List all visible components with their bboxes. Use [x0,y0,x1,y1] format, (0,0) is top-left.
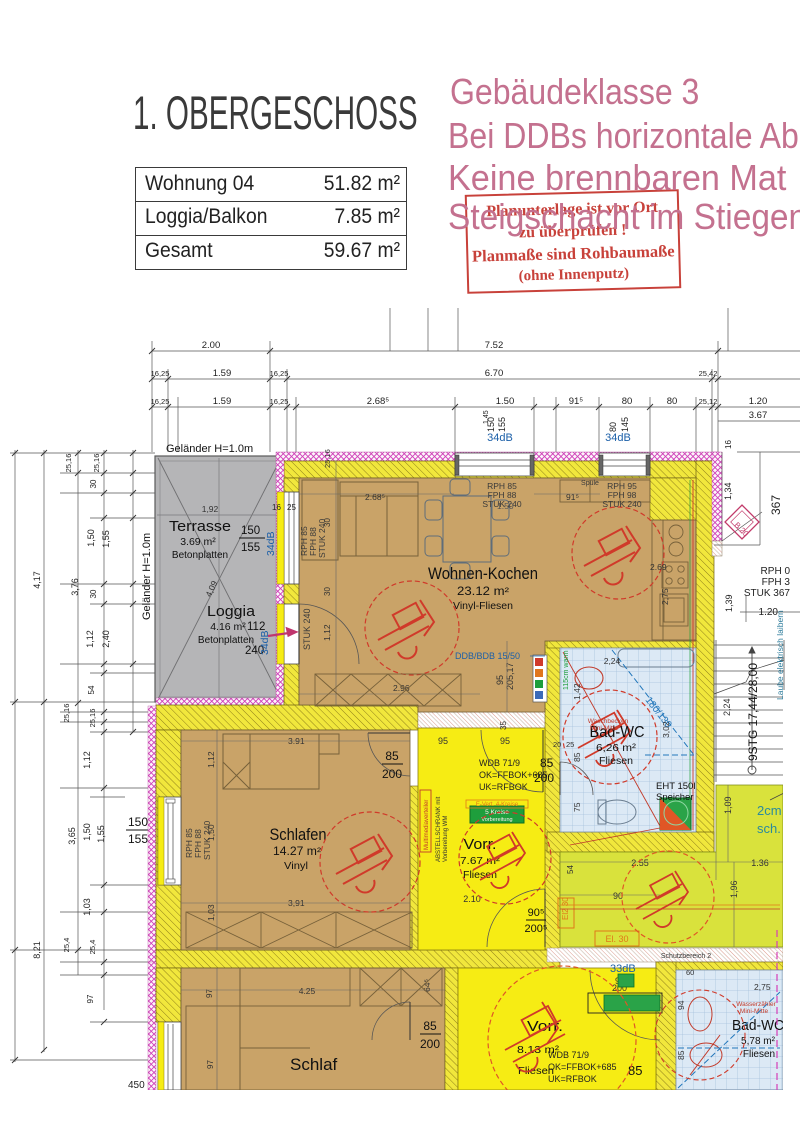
svg-text:14.27 m²: 14.27 m² [273,846,321,858]
svg-text:150: 150 [241,525,260,537]
svg-text:Fliesen: Fliesen [599,755,633,767]
svg-text:3,65: 3,65 [67,827,77,845]
svg-text:155: 155 [497,417,507,432]
svg-text:1,03: 1,03 [82,898,92,916]
svg-text:STUK 240: STUK 240 [602,499,641,509]
svg-text:23.12 m²: 23.12 m² [457,586,509,598]
svg-text:85: 85 [423,1019,437,1033]
svg-text:STUK 240: STUK 240 [302,608,312,650]
svg-text:EHT 150l: EHT 150l [656,781,695,792]
svg-text:54: 54 [87,685,96,694]
svg-text:Vinyl: Vinyl [284,860,308,872]
svg-text:2cm: 2cm [757,803,782,818]
svg-text:Betonplatten: Betonplatten [172,550,228,561]
svg-text:30: 30 [89,479,98,488]
svg-text:Mini-Mitte: Mini-Mitte [740,1008,769,1015]
svg-text:367: 367 [769,495,783,515]
svg-text:85: 85 [676,1050,686,1060]
svg-text:30: 30 [323,587,332,596]
svg-text:25: 25 [287,503,296,512]
svg-text:1,50: 1,50 [206,824,216,841]
svg-text:2.68⁵: 2.68⁵ [367,396,389,407]
svg-text:4.25: 4.25 [299,986,316,996]
svg-text:2,75: 2,75 [754,982,771,992]
svg-text:2,75: 2,75 [660,588,670,605]
svg-text:1.20: 1.20 [749,396,768,407]
svg-text:Wasserzähler: Wasserzähler [736,1001,776,1008]
svg-text:1,12: 1,12 [322,624,332,641]
svg-text:Fliesen: Fliesen [743,1049,775,1060]
svg-text:25,16: 25,16 [64,454,73,473]
svg-text:FPH 3: FPH 3 [762,577,791,588]
svg-text:4.16 m²: 4.16 m² [210,621,246,633]
svg-text:Laube elektrisch laibern: Laube elektrisch laibern [775,610,785,700]
svg-text:3,76: 3,76 [70,578,80,596]
svg-text:UK=RFBOK: UK=RFBOK [548,1074,597,1084]
svg-text:4,17: 4,17 [32,571,42,589]
svg-text:34dB: 34dB [265,531,277,556]
svg-text:3,02: 3,02 [661,721,671,738]
svg-text:1.36: 1.36 [751,858,769,868]
svg-text:34dB: 34dB [487,432,513,444]
svg-text:Geländer H=1.0m: Geländer H=1.0m [166,443,253,455]
svg-text:25,4: 25,4 [62,938,71,953]
svg-text:16: 16 [272,503,281,512]
svg-text:1,12: 1,12 [82,751,92,769]
svg-text:91⁵: 91⁵ [569,396,584,407]
svg-text:2,24: 2,24 [722,698,732,716]
svg-text:Spüle: Spüle [581,480,599,487]
svg-text:1,55: 1,55 [96,825,106,843]
svg-text:WDB 71/9: WDB 71/9 [548,1050,589,1060]
svg-text:95: 95 [495,675,505,685]
svg-text:6,26 m²: 6,26 m² [596,742,637,754]
svg-text:1,55: 1,55 [101,530,111,548]
svg-text:RPH 0: RPH 0 [761,566,791,577]
svg-text:94: 94 [676,1000,686,1010]
svg-text:Bad-WC: Bad-WC [732,1017,784,1034]
svg-text:80: 80 [608,422,618,432]
svg-text:Terrasse: Terrasse [169,518,231,535]
svg-text:16: 16 [724,440,733,449]
svg-text:1,50: 1,50 [82,823,92,841]
svg-text:200: 200 [382,767,402,781]
svg-text:2.68⁵: 2.68⁵ [365,492,385,502]
svg-text:35: 35 [499,721,508,730]
svg-text:6.70: 6.70 [485,368,504,379]
svg-text:El2 30: El2 30 [561,897,570,920]
svg-text:200: 200 [420,1037,440,1051]
svg-text:Speicher: Speicher [656,792,694,803]
svg-text:DDB/BDB 15/50: DDB/BDB 15/50 [455,651,520,661]
svg-text:1,12: 1,12 [85,630,95,648]
svg-text:1,50: 1,50 [86,529,96,547]
svg-text:8,21: 8,21 [32,941,42,959]
svg-text:30: 30 [89,589,98,598]
svg-text:UK=RFBOK: UK=RFBOK [479,782,528,792]
svg-text:205,17: 205,17 [505,662,515,690]
svg-text:Vorbereitung WM: Vorbereitung WM [443,816,449,862]
svg-text:Mini-Mitte: Mini-Mitte [590,725,619,732]
svg-text:16,25: 16,25 [151,369,170,378]
svg-text:Schutzbereich 2: Schutzbereich 2 [661,953,711,960]
svg-text:Schlaf: Schlaf [290,1055,338,1074]
svg-text:33dB: 33dB [610,963,636,975]
svg-text:145: 145 [620,417,630,432]
svg-text:5,78 m²: 5,78 m² [741,1036,776,1047]
svg-text:9STG 17,44/28,00: 9STG 17,44/28,00 [746,663,760,761]
svg-text:OK=FFBOK+685: OK=FFBOK+685 [548,1062,617,1072]
svg-text:91⁵: 91⁵ [566,492,579,502]
svg-text:2,40: 2,40 [101,630,111,648]
svg-text:25: 25 [566,740,574,749]
svg-text:7.52: 7.52 [485,340,504,351]
svg-text:E-Vert. 4-Kreise: E-Vert. 4-Kreise [476,802,519,808]
svg-text:Loggia: Loggia [207,603,256,620]
svg-text:97: 97 [86,994,95,1003]
svg-text:2.00: 2.00 [202,340,221,351]
svg-text:1,42: 1,42 [572,683,582,700]
svg-text:1,92: 1,92 [202,504,219,514]
svg-text:1,45: 1,45 [483,410,490,424]
svg-text:Wohnen-Kochen: Wohnen-Kochen [428,564,538,583]
svg-text:1,34: 1,34 [723,482,733,500]
svg-text:16,25: 16,25 [270,369,289,378]
svg-text:200⁵: 200⁵ [525,923,548,935]
svg-text:1.50: 1.50 [497,501,514,511]
svg-text:1,39: 1,39 [724,594,734,612]
svg-text:54: 54 [566,865,575,874]
svg-text:El. 30: El. 30 [605,934,628,944]
svg-text:25,16: 25,16 [92,454,101,473]
svg-text:1,03: 1,03 [206,904,216,921]
svg-text:STUK 367: STUK 367 [744,588,791,599]
svg-text:60: 60 [686,968,694,977]
svg-text:80: 80 [622,396,633,407]
svg-text:1.50: 1.50 [496,396,515,407]
svg-text:ABSTELLSCHRANK mit: ABSTELLSCHRANK mit [436,796,442,862]
svg-text:1.59: 1.59 [213,396,232,407]
svg-text:25,42: 25,42 [699,369,718,378]
svg-text:Waschbecken: Waschbecken [588,718,629,725]
svg-text:sch.: sch. [757,821,781,836]
svg-text:95: 95 [438,736,448,746]
svg-text:85: 85 [628,1063,642,1078]
svg-text:25,16: 25,16 [62,704,71,723]
svg-text:95: 95 [500,736,510,746]
svg-text:450: 450 [128,1080,145,1091]
svg-text:1.59: 1.59 [213,368,232,379]
svg-text:16,25: 16,25 [270,397,289,406]
svg-text:3.69 m²: 3.69 m² [180,536,216,548]
svg-text:80: 80 [667,396,678,407]
svg-text:25,4: 25,4 [88,940,97,955]
svg-text:2.69: 2.69 [650,562,667,572]
svg-text:Geländer H=1.0m: Geländer H=1.0m [141,533,153,620]
svg-text:30: 30 [323,518,332,527]
svg-text:90⁵: 90⁵ [528,907,545,919]
svg-text:34dB: 34dB [605,432,631,444]
svg-text:25,16: 25,16 [88,709,97,728]
svg-text:Vinyl-Fliesen: Vinyl-Fliesen [453,600,513,612]
svg-text:155: 155 [128,832,148,846]
svg-text:150: 150 [128,815,148,829]
svg-text:Schlafen: Schlafen [270,825,327,844]
svg-text:WDB 71/9: WDB 71/9 [479,758,520,768]
svg-text:2,24: 2,24 [604,656,621,666]
svg-text:97: 97 [206,1060,215,1069]
svg-text:20: 20 [553,740,561,749]
svg-text:34dB: 34dB [259,630,271,655]
svg-text:155: 155 [241,542,260,554]
svg-text:25,16: 25,16 [323,449,332,468]
svg-text:85: 85 [572,752,582,762]
svg-text:Vorbereitung: Vorbereitung [481,817,512,823]
svg-text:115cm warm: 115cm warm [563,650,570,690]
svg-text:1,12: 1,12 [206,751,216,768]
svg-text:85: 85 [385,749,399,763]
svg-text:Multimediaverteiler: Multimediaverteiler [424,800,430,850]
svg-text:25,12: 25,12 [699,397,718,406]
svg-text:3.67: 3.67 [749,410,768,421]
svg-text:OK=FFBOK+685: OK=FFBOK+685 [479,770,548,780]
svg-text:85: 85 [540,756,554,770]
svg-text:16,25: 16,25 [151,397,170,406]
svg-text:75: 75 [572,802,582,812]
